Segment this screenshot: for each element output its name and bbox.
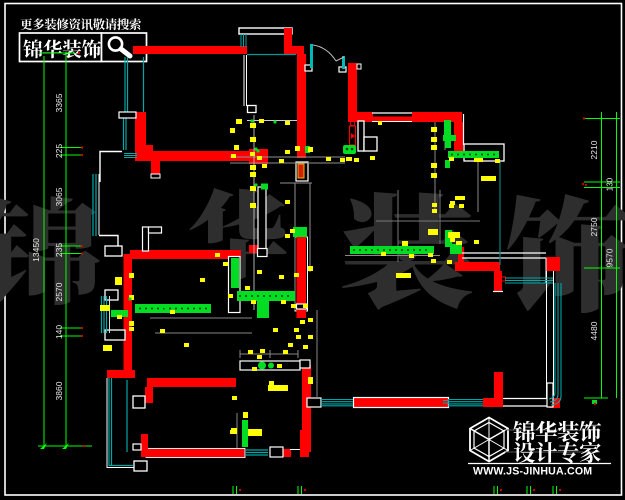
svg-text:13450: 13450: [31, 238, 41, 262]
svg-text:3365: 3365: [54, 93, 64, 112]
svg-text:2750: 2750: [589, 217, 599, 236]
svg-text:WWW.JS-JINHUA.COM: WWW.JS-JINHUA.COM: [473, 466, 592, 478]
svg-text:3065: 3065: [54, 187, 64, 206]
svg-text:3860: 3860: [54, 381, 64, 400]
svg-text:2210: 2210: [589, 140, 599, 159]
svg-text:235: 235: [54, 243, 64, 257]
svg-text:140: 140: [54, 325, 64, 339]
svg-text:130: 130: [606, 177, 615, 191]
svg-text:2570: 2570: [54, 282, 64, 301]
svg-text:225: 225: [54, 144, 64, 158]
svg-text:9570: 9570: [605, 248, 615, 267]
svg-text:4480: 4480: [589, 321, 599, 340]
